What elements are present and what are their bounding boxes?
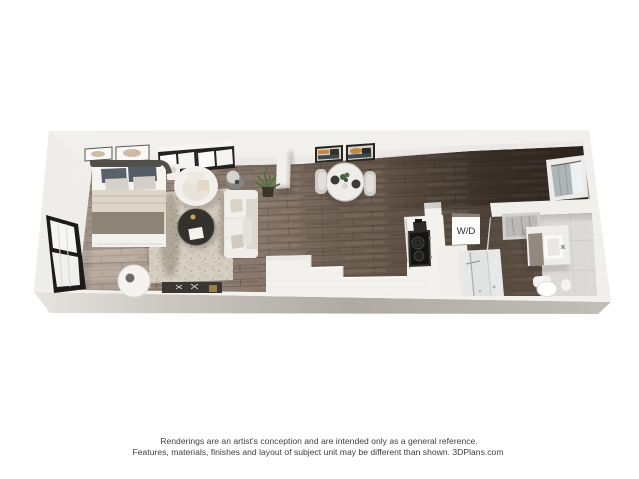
svg-text:Features, materials, finishes: Features, materials, finishes and layout… — [133, 447, 504, 457]
svg-text:W/D: W/D — [457, 226, 476, 237]
svg-text:Renderings are an artist's con: Renderings are an artist's conception an… — [160, 436, 477, 446]
